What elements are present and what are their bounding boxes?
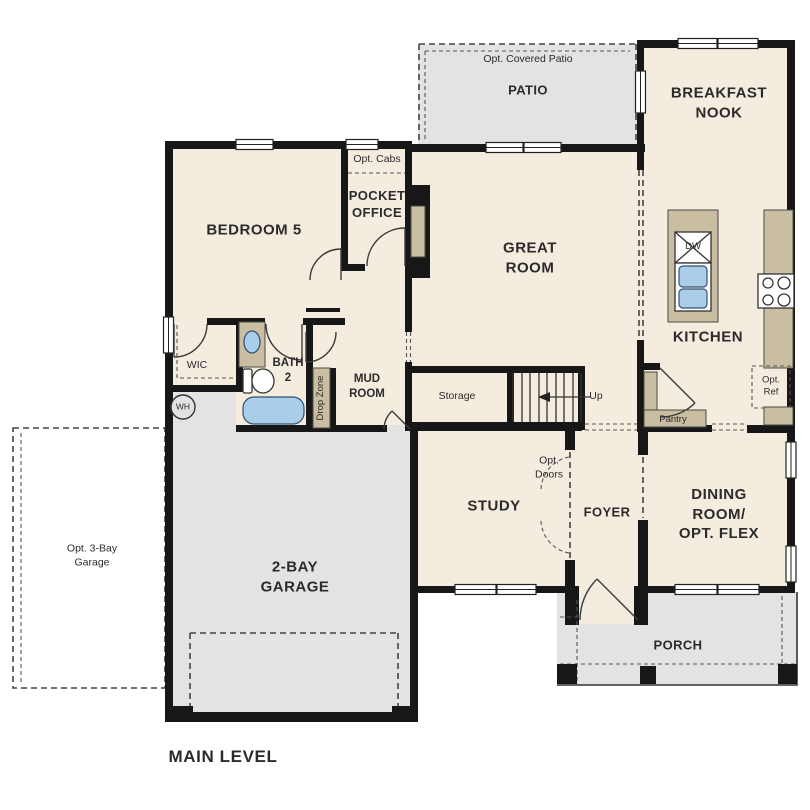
opt-doors-label: Opt. Doors bbox=[535, 454, 563, 481]
room-label-breakfast-nook: BREAKFAST NOOK bbox=[671, 84, 767, 123]
room-label-mud-room: MUD ROOM bbox=[349, 372, 385, 402]
room-label-patio: PATIO bbox=[508, 83, 548, 100]
room-label-pocket-office: POCKET OFFICE bbox=[349, 188, 406, 222]
room-label-wic: WIC bbox=[187, 359, 207, 373]
room-label-great-room: GREAT ROOM bbox=[503, 239, 557, 278]
drop-zone-label: Drop Zone bbox=[315, 376, 327, 421]
room-label-dining-flex: DINING ROOM/ OPT. FLEX bbox=[674, 485, 765, 544]
room-label-foyer: FOYER bbox=[584, 505, 631, 522]
toilet-tank bbox=[243, 369, 252, 393]
room-label-garage: 2-BAY GARAGE bbox=[261, 558, 330, 597]
opt-cabs-label: Opt. Cabs bbox=[353, 153, 400, 167]
room-label-bedroom5: BEDROOM 5 bbox=[206, 220, 301, 240]
dishwasher-label: DW bbox=[685, 241, 701, 253]
bathtub bbox=[243, 397, 304, 424]
room-label-porch: PORCH bbox=[654, 638, 703, 655]
plan-title: MAIN LEVEL bbox=[169, 746, 278, 768]
opt-covered-patio-label: Opt. Covered Patio bbox=[483, 53, 572, 67]
porch-post bbox=[557, 664, 577, 684]
water-heater-label: WH bbox=[176, 401, 190, 412]
toilet-bowl bbox=[252, 369, 274, 393]
garage-area bbox=[165, 392, 412, 718]
stairs-up-label: Up bbox=[589, 390, 602, 404]
bath-sink bbox=[244, 331, 260, 353]
pantry-label: Pantry bbox=[659, 414, 686, 426]
room-label-kitchen: KITCHEN bbox=[673, 327, 743, 347]
porch-post bbox=[778, 664, 797, 684]
floor-plan-page: Opt. Covered Patio PATIO BREAKFAST NOOK … bbox=[0, 0, 810, 810]
opt-ref-label: Opt. Ref bbox=[762, 375, 780, 400]
room-label-study: STUDY bbox=[467, 496, 520, 516]
room-label-bath2: BATH 2 bbox=[272, 356, 303, 386]
opt-3bay-garage-label: Opt. 3-Bay Garage bbox=[67, 542, 117, 569]
storage-label: Storage bbox=[439, 390, 476, 404]
porch-post bbox=[640, 666, 656, 684]
